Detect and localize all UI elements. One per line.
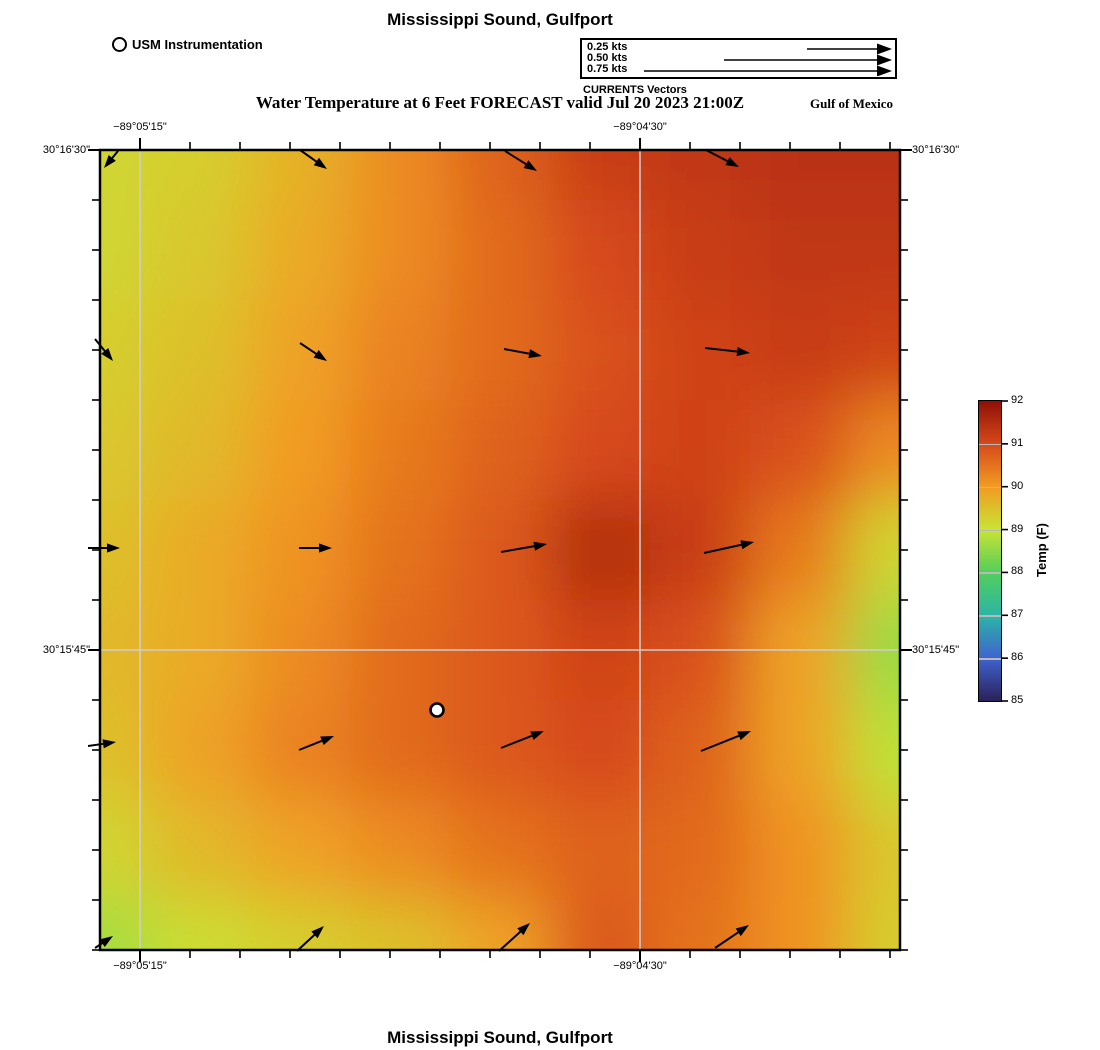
vector-arrow — [644, 66, 892, 77]
colorbar-separator — [979, 615, 1001, 617]
colorbar-tick-label: 92 — [1011, 394, 1023, 406]
temperature-heatmap — [88, 138, 912, 962]
colorbar-separator — [979, 530, 1001, 532]
colorbar-tick-label: 85 — [1011, 694, 1023, 706]
colorbar-ticks — [1001, 400, 1010, 702]
y-axis-label-right: 30°16'30" — [912, 144, 959, 157]
colorbar — [978, 400, 1002, 702]
colorbar-separator — [979, 658, 1001, 660]
colorbar-separator — [979, 444, 1001, 446]
y-axis-label-right: 30°15'45" — [912, 644, 959, 657]
station-legend: USM Instrumentation — [112, 37, 263, 52]
currents-legend-arrows — [582, 40, 894, 76]
map-plot — [88, 138, 912, 962]
vector-arrow — [724, 55, 892, 66]
colorbar-title: Temp (F) — [1034, 400, 1056, 700]
colorbar-tick-label: 89 — [1011, 523, 1023, 535]
page-title: Mississippi Sound, Gulfport — [0, 10, 1000, 30]
y-axis-label-left: 30°16'30" — [28, 144, 90, 157]
vector-arrow — [807, 44, 892, 55]
colorbar-separator — [979, 572, 1001, 574]
colorbar-tick-label: 90 — [1011, 480, 1023, 492]
page-title-bottom: Mississippi Sound, Gulfport — [0, 1028, 1000, 1048]
colorbar-tick-label: 86 — [1011, 651, 1023, 663]
gulf-of-mexico-label: Gulf of Mexico — [810, 96, 893, 112]
usm-station-marker — [431, 704, 444, 717]
colorbar-separator — [979, 487, 1001, 489]
y-axis-label-left: 30°15'45" — [28, 644, 90, 657]
colorbar-tick-label: 91 — [1011, 437, 1023, 449]
x-axis-label-top: −89°04'30" — [580, 121, 700, 134]
colorbar-tick-label: 87 — [1011, 608, 1023, 620]
currents-legend-box: 0.25 kts 0.50 kts 0.75 kts — [580, 38, 897, 79]
station-legend-label: USM Instrumentation — [132, 37, 263, 52]
station-marker-icon — [112, 37, 127, 52]
x-axis-label-top: −89°05'15" — [80, 121, 200, 134]
currents-legend-entry: 0.75 kts — [587, 64, 627, 75]
colorbar-tick-label: 88 — [1011, 565, 1023, 577]
